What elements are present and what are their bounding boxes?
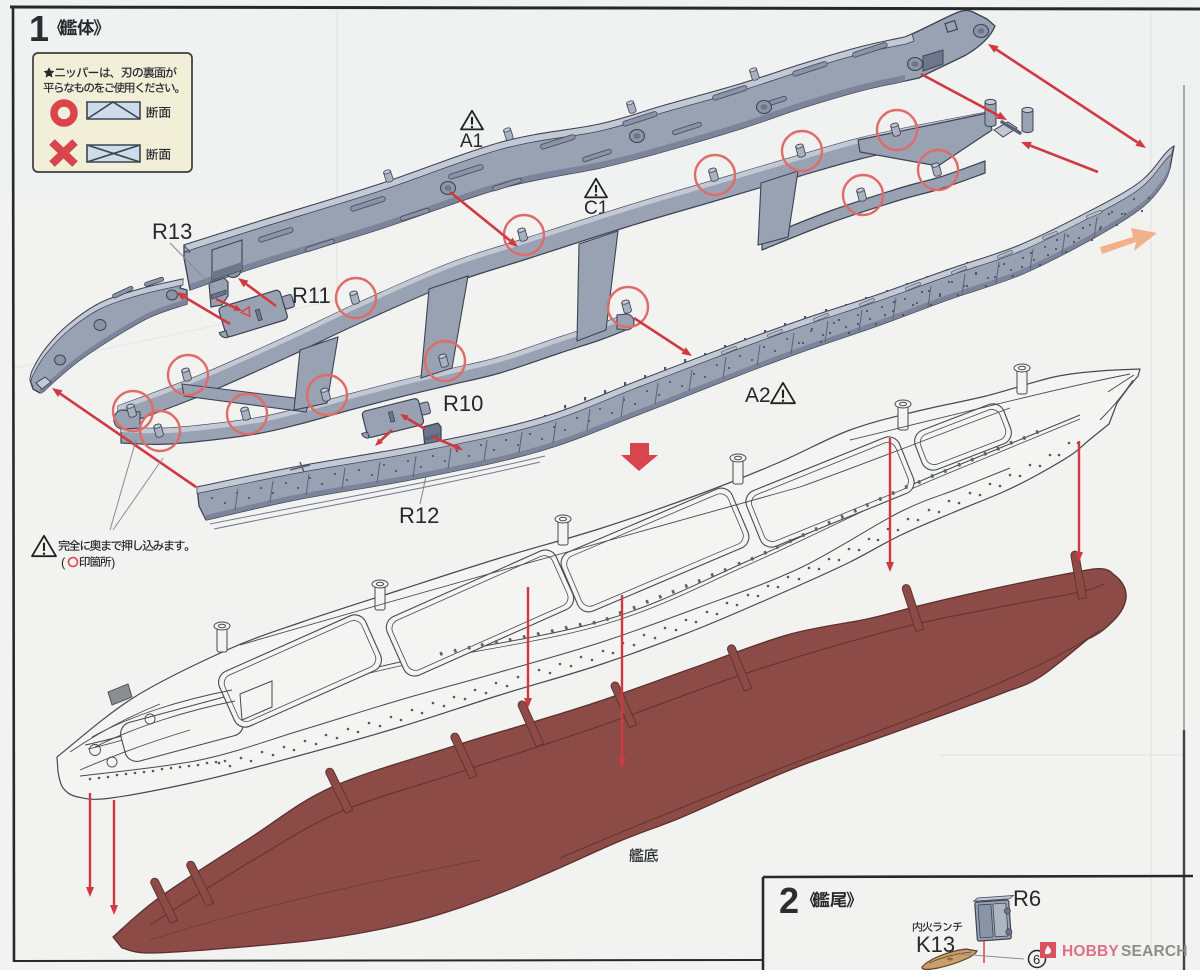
svg-text:HOBBY: HOBBY [1062, 943, 1119, 960]
svg-text:R13: R13 [152, 219, 192, 244]
svg-text:(: ( [61, 555, 66, 570]
svg-text:R12: R12 [399, 503, 439, 528]
svg-text:A1: A1 [460, 131, 483, 152]
svg-text:R11: R11 [292, 283, 331, 308]
svg-text:SEARCH: SEARCH [1121, 943, 1188, 960]
svg-text:2: 2 [779, 880, 799, 921]
svg-text:R10: R10 [443, 391, 483, 416]
svg-text:A2: A2 [745, 384, 771, 407]
svg-text:R6: R6 [1013, 886, 1041, 911]
svg-text:1: 1 [29, 8, 49, 49]
svg-text:): ) [111, 555, 115, 570]
svg-text:6: 6 [1033, 952, 1040, 967]
